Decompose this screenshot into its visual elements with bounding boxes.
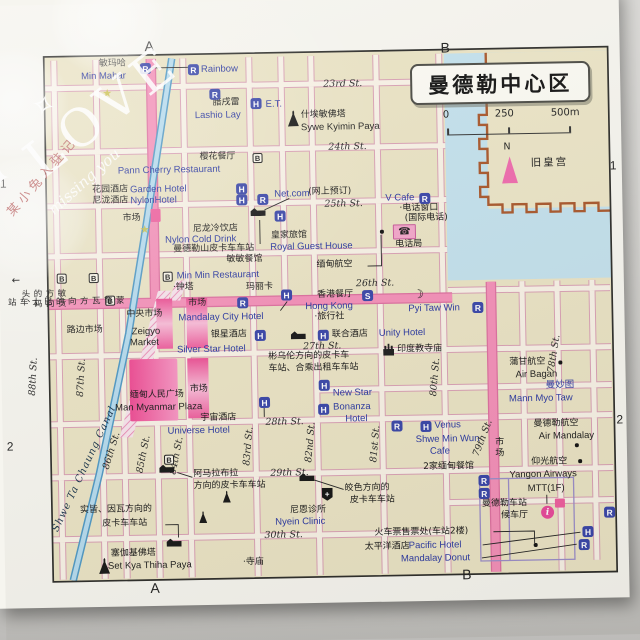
hotel-icon: H (250, 98, 261, 109)
hotel-icon: H (582, 526, 593, 537)
sagaing-1: 实皆、因瓦方向的 (80, 505, 152, 516)
minmin-cafe: 敏敏餐馆 (226, 255, 262, 265)
info-icon: i (541, 506, 554, 519)
grid-mark-A: A (144, 38, 154, 54)
minmin-restaurant: Min Min Restaurant (177, 270, 260, 281)
nyein-clinic-en: Nyein Clinic (275, 517, 325, 528)
kyaukse-2: 皮卡车车站 (350, 496, 395, 506)
hotel-icon: H (275, 211, 286, 222)
nyein-clinic-cn: 尼恩诊所 (290, 506, 326, 516)
street-78th: 78th St. (546, 334, 563, 374)
shwe-min-wun-1: Shwe Min Wun (416, 434, 480, 445)
poi-dot-icon (575, 443, 579, 447)
pickup-station-icon (167, 538, 182, 546)
garden-hotel-en: Garden Hotel (130, 184, 187, 195)
street-24th: 24th St. (328, 141, 367, 153)
pink-building-icon (555, 498, 565, 507)
phone-office-icon: ☎ (393, 224, 416, 239)
restaurant-icon: R (604, 507, 615, 518)
poi-dot-icon (578, 459, 582, 463)
hotel-icon: H (319, 380, 330, 391)
plaza-cn: 缅甸人民广场 (130, 390, 184, 400)
scale-tick (508, 127, 510, 133)
b-marker-icon: B (163, 272, 173, 282)
market-strip1-label: 市场 (188, 299, 206, 309)
netcom-en: Net.com (274, 189, 310, 200)
air-mandalay-cn: 曼德勒航空 (533, 419, 578, 429)
lashio-lay-cn: 腊戌雷 (212, 98, 239, 108)
marika: 玛丽卡 (246, 283, 273, 293)
unity-hotel-en: Unity Hotel (379, 328, 426, 339)
hotel-icon: H (420, 421, 431, 432)
hotel-icon: H (236, 183, 247, 194)
poi-dot-icon (534, 543, 538, 547)
b-marker-icon: B (164, 455, 174, 465)
compass-north-label: N (503, 141, 510, 152)
street-30th: 30th St. (264, 529, 303, 541)
b-marker-icon: B (89, 273, 99, 283)
restaurant-icon: R (478, 475, 489, 486)
street-80th: 80th St. (428, 358, 442, 397)
market-strip2-label: 市场 (190, 385, 208, 395)
temple-dot: ·寺庙 (243, 558, 264, 568)
street-25th: 25th St. (324, 198, 363, 210)
air-mandalay-en: Air Mandalay (539, 431, 595, 442)
restaurant-icon: R (188, 64, 199, 75)
street-88th: 88th St. (27, 357, 40, 396)
scale-bar: 0 250 500m (443, 107, 578, 139)
scale-zero: 0 (443, 109, 450, 120)
watermark-star-icon: ★ (102, 87, 112, 100)
scale-500m: 500m (551, 107, 580, 119)
two-restaurants: 2家缅甸餐馆 (423, 462, 474, 472)
restaurant-icon: R (579, 539, 590, 550)
pickup-station-icon (291, 331, 306, 339)
street-82nd: 82nd St. (303, 422, 317, 463)
watermark-star-icon: ★ (140, 223, 150, 236)
restaurant-icon: R (209, 89, 220, 100)
kyaukse-1: 皎色方向的 (345, 484, 390, 494)
pyi-taw-win: Pyi Taw Win (408, 303, 460, 314)
universe-en: Universe Hotel (167, 426, 229, 437)
et-hotel: E.T. (265, 100, 282, 110)
map-title-box: 曼德勒中心区 (410, 61, 591, 105)
mann-myo-taw-cn: 曼妙图 (546, 380, 575, 390)
pann-cherry-cn: 樱花餐厅 (199, 152, 235, 162)
book-page: 敏玛哈Min MaharRainbow腊戌雷Lashio LayE.T.23rd… (0, 0, 630, 609)
silver-star-cn: 银星酒店 (211, 330, 247, 340)
grid-mark-1: 1 (0, 177, 7, 191)
old-palace-label: 旧皇宫 (531, 154, 569, 170)
nylon-hotel-en: NylonHotel (130, 196, 177, 207)
restaurant-icon: R (257, 194, 268, 205)
zeigyo-en1: Zeigyo (132, 327, 161, 337)
street-83rd: 83rd St. (241, 426, 255, 466)
min-mahar-cn: 敏玛哈 (99, 59, 126, 69)
sywe-kyimin-cn: 什埃敏佛塔 (301, 110, 346, 120)
restaurant-icon: R (140, 63, 151, 74)
mandalay-city-hotel: Mandalay City Hotel (178, 312, 263, 323)
hong-kong-cn: 香港餐厅 (317, 290, 353, 300)
pickup-station-icon (250, 208, 265, 216)
nylon-hotel-cn: 尼泷酒店 (92, 196, 128, 206)
hotel-icon: H (255, 330, 266, 341)
pagoda-icon (199, 511, 207, 523)
left-arrow-icon: ← (12, 275, 21, 286)
s-marker-icon: S (362, 290, 373, 301)
phone-window-2: (国际电话) (405, 214, 448, 224)
grid-mark-2: 2 (616, 412, 623, 426)
plaza-en: Man Myanmar Plaza (115, 402, 202, 413)
pyin-oo-lwin-pickup-2: 车站、合乘出租车车站 (268, 363, 358, 374)
hindu-temple: 印度教寺庙 (397, 345, 442, 355)
mtt: MTT(1F) (528, 483, 565, 494)
scale-250: 250 (495, 108, 514, 119)
street-26th: 26th St. (356, 278, 395, 290)
hindu-temple-icon (383, 344, 394, 356)
restaurant-icon: R (391, 420, 402, 431)
hong-kong-en: Hong Kong (305, 301, 353, 312)
clinic-icon: + (322, 488, 333, 501)
venus: Venus (434, 420, 461, 430)
sagaing-2: 皮卡车车站 (102, 519, 147, 529)
b-marker-icon: B (252, 153, 262, 163)
rainbow: Rainbow (201, 64, 238, 75)
scale-numbers: 0 250 500m (443, 107, 577, 123)
royal-guest-cn: 皇家旅馆 (271, 231, 307, 241)
amarapura-1: 阿马拉布拉 (193, 469, 238, 479)
restaurant-icon: R (419, 193, 430, 204)
poi-dot-icon (380, 230, 384, 234)
street-87th: 87th St. (75, 358, 88, 397)
myanma-airways: 缅甸航空 (316, 260, 352, 270)
restaurant-icon: R (479, 488, 490, 499)
map-frame: 敏玛哈Min MaharRainbow腊戌雷Lashio LayE.T.23rd… (0, 0, 640, 640)
pacific-en: Pacific Hotel (409, 540, 462, 551)
mann-myo-taw-en: Mann Myo Taw (509, 393, 573, 404)
hotel-icon: H (259, 397, 270, 408)
hotel-icon: H (236, 194, 247, 205)
grid-mark-2: 2 (7, 440, 14, 454)
photo-of-map-page: 敏玛哈Min MaharRainbow腊戌雷Lashio LayE.T.23rd… (0, 0, 640, 640)
scale-tick (569, 126, 571, 132)
yangon-airways-en: Yangon Airways (509, 469, 577, 480)
market-small: 市场 (123, 214, 141, 224)
set-kya-en: Set Kya Thiha Paya (108, 560, 192, 571)
scale-tick (447, 129, 449, 135)
netcom-cn: (网上预订) (308, 187, 351, 197)
silver-star-en: Silver Star Hotel (177, 344, 246, 355)
pagoda-icon (223, 491, 231, 503)
pann-cherry-en: Pann Cherry Restaurant (118, 165, 221, 177)
sywe-kyimin-en: Sywe Kyimin Paya (301, 122, 380, 133)
bonanza-2: Hotel (345, 414, 367, 424)
hotel-icon: H (318, 330, 329, 341)
clock-tower: ·钟塔 (173, 283, 194, 293)
amarapura-2: 方向的皮卡车车站 (193, 481, 265, 492)
roadside-market: 路边市场 (67, 326, 103, 336)
shwe-min-wun-2: Cafe (430, 447, 450, 457)
grid-mark-B: B (440, 39, 450, 55)
hotel-icon: H (281, 289, 292, 300)
bonanza-1: Bonanza (333, 402, 371, 413)
phone-office: 电话局 (395, 240, 422, 250)
unity-hotel-cn: 联合酒店 (332, 330, 368, 340)
page-content: 敏玛哈Min MaharRainbow腊戌雷Lashio LayE.T.23rd… (0, 0, 640, 640)
waiting-hall: 候车厅 (501, 511, 528, 521)
restaurant-icon: R (472, 302, 483, 313)
street-23rd: 23rd St. (323, 78, 362, 90)
lashio-lay-en: Lashio Lay (195, 110, 241, 121)
air-bagan-cn: 蒲甘航空 (509, 358, 545, 368)
pagoda-icon (288, 110, 299, 126)
mandalay-donut: Mandalay Donut (401, 553, 470, 564)
mosque-icon: ☾ (413, 287, 424, 301)
street-85th: 85th St. (135, 434, 153, 474)
grid-mark-1: 1 (610, 158, 617, 172)
b-marker-icon: B (57, 274, 67, 284)
garden-hotel-cn: 花园酒店 (92, 185, 128, 195)
hotel-icon: H (318, 404, 329, 415)
min-mahar-en: Min Mahar (81, 71, 126, 82)
set-kya-cn: 塞伽基佛塔 (111, 549, 156, 559)
pyin-oo-lwin-pickup-1: 彬乌伦方向的皮卡车 (268, 351, 349, 362)
universe-cn: 宇宙酒店 (200, 413, 236, 423)
street-81st: 81st St. (368, 425, 382, 463)
grid-mark-A: A (150, 580, 160, 596)
poi-dot-icon (558, 360, 562, 364)
royal-guest-en: Royal Guest House (270, 241, 353, 252)
ticket-office: 火车票售票处(车站2楼) (374, 527, 468, 538)
zeigyo-en2: Market (130, 338, 159, 348)
new-star: New Star (333, 388, 372, 399)
map-title: 曼德勒中心区 (428, 67, 573, 100)
station-cn: 曼德勒车站 (482, 499, 527, 509)
market-vertical: 市场 (493, 437, 503, 459)
grid-mark-B: B (462, 566, 472, 582)
yangon-airways-cn: 仰光航空 (531, 457, 567, 467)
pacific-cn: 太平洋酒店 (365, 542, 410, 552)
restaurant-icon: R (237, 297, 248, 308)
v-cafe: V Cafe (385, 193, 414, 203)
travel-agency: ·旅行社 (314, 312, 344, 322)
zeigyo-cn: 中央市场 (126, 310, 162, 320)
scale-rule (447, 126, 571, 135)
street-28th: 28th St. (265, 416, 304, 428)
pink-building-icon (150, 209, 160, 222)
